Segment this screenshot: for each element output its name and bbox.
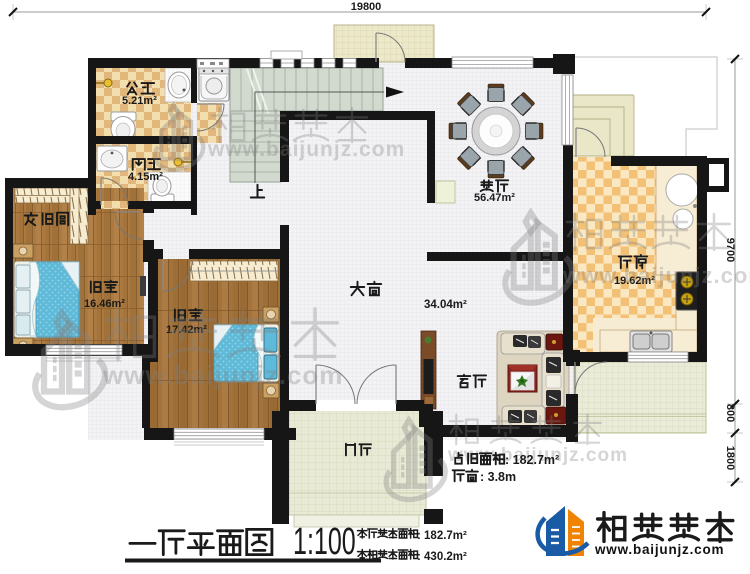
svg-text:www.baijunjz.com: www.baijunjz.com <box>594 542 724 557</box>
svg-text:: 430.2m²: : 430.2m² <box>417 551 467 563</box>
svg-text:: 182.7m²: : 182.7m² <box>505 453 559 467</box>
svg-text:www.baijunjz.com: www.baijunjz.com <box>562 263 750 288</box>
svg-text:4.15m²: 4.15m² <box>128 171 163 183</box>
svg-text:800: 800 <box>724 404 736 422</box>
svg-text:5.21m²: 5.21m² <box>122 95 157 107</box>
svg-text:www.baijunjz.com: www.baijunjz.com <box>207 138 405 161</box>
svg-text:1800: 1800 <box>724 446 736 470</box>
svg-text:: 182.7m²: : 182.7m² <box>417 530 467 542</box>
svg-text:34.04m²: 34.04m² <box>424 299 467 311</box>
svg-text:9700: 9700 <box>724 238 736 262</box>
svg-text:www.baijunjz.com: www.baijunjz.com <box>102 360 343 390</box>
svg-text:1:100: 1:100 <box>293 520 356 562</box>
svg-text:56.47m²: 56.47m² <box>474 192 515 204</box>
svg-text:: 3.8m: : 3.8m <box>480 470 516 484</box>
svg-text:19800: 19800 <box>351 1 382 13</box>
